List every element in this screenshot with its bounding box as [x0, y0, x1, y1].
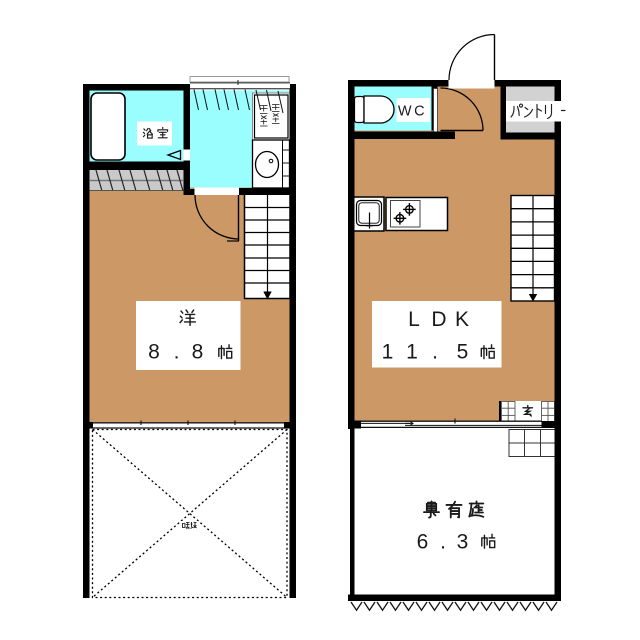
svg-text:D: D — [431, 308, 446, 331]
svg-text:L: L — [408, 308, 420, 331]
svg-text:8: 8 — [148, 341, 160, 364]
svg-text:5: 5 — [457, 341, 469, 364]
svg-text:8: 8 — [192, 341, 204, 364]
svg-text:WC: WC — [398, 104, 427, 120]
svg-text:3: 3 — [457, 531, 469, 554]
svg-text:1: 1 — [406, 341, 418, 364]
svg-text:.: . — [432, 341, 438, 364]
svg-text:.: . — [174, 341, 180, 364]
svg-text:1: 1 — [382, 341, 394, 364]
svg-text:K: K — [455, 308, 469, 331]
svg-text:.: . — [440, 531, 446, 554]
svg-text:6: 6 — [417, 531, 429, 554]
